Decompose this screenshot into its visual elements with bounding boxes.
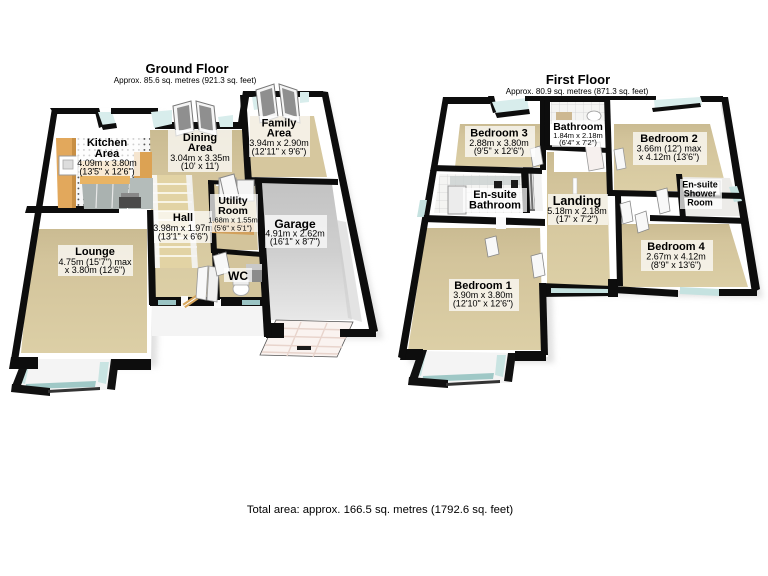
svg-text:First Floor: First Floor [546, 72, 610, 87]
svg-text:x 3.80m (12'6"): x 3.80m (12'6") [65, 265, 125, 275]
svg-text:(13'5" x 12'6"): (13'5" x 12'6") [79, 167, 134, 177]
svg-text:(12'10" x 12'6"): (12'10" x 12'6") [453, 299, 513, 309]
svg-text:Room: Room [687, 198, 713, 208]
svg-text:Approx. 80.9 sq. metres (871.3: Approx. 80.9 sq. metres (871.3 sq. feet) [506, 87, 649, 96]
svg-text:Total area: approx. 166.5 sq.: Total area: approx. 166.5 sq. metres (17… [247, 504, 513, 516]
svg-text:(17' x 7'2"): (17' x 7'2") [556, 214, 598, 224]
svg-text:Bathroom: Bathroom [469, 200, 521, 212]
svg-text:x 4.12m (13'6"): x 4.12m (13'6") [639, 152, 699, 162]
svg-text:(10' x 11'): (10' x 11') [181, 161, 219, 171]
svg-text:(16'1" x 8'7"): (16'1" x 8'7") [270, 237, 320, 247]
svg-text:(12'11" x 9'6"): (12'11" x 9'6") [252, 147, 307, 157]
svg-text:(13'1" x 6'6"): (13'1" x 6'6") [158, 232, 208, 242]
svg-text:WC: WC [228, 269, 248, 283]
svg-text:(8'9" x 13'6"): (8'9" x 13'6") [651, 260, 701, 270]
svg-text:(9'5" x 12'6"): (9'5" x 12'6") [474, 146, 524, 156]
svg-text:(6'4" x 7'2"): (6'4" x 7'2") [559, 138, 597, 147]
svg-text:Ground Floor: Ground Floor [145, 61, 228, 76]
svg-text:Approx. 85.6 sq. metres (921.3: Approx. 85.6 sq. metres (921.3 sq. feet) [114, 76, 257, 85]
svg-text:(5'6" x 5'1"): (5'6" x 5'1") [214, 224, 252, 233]
